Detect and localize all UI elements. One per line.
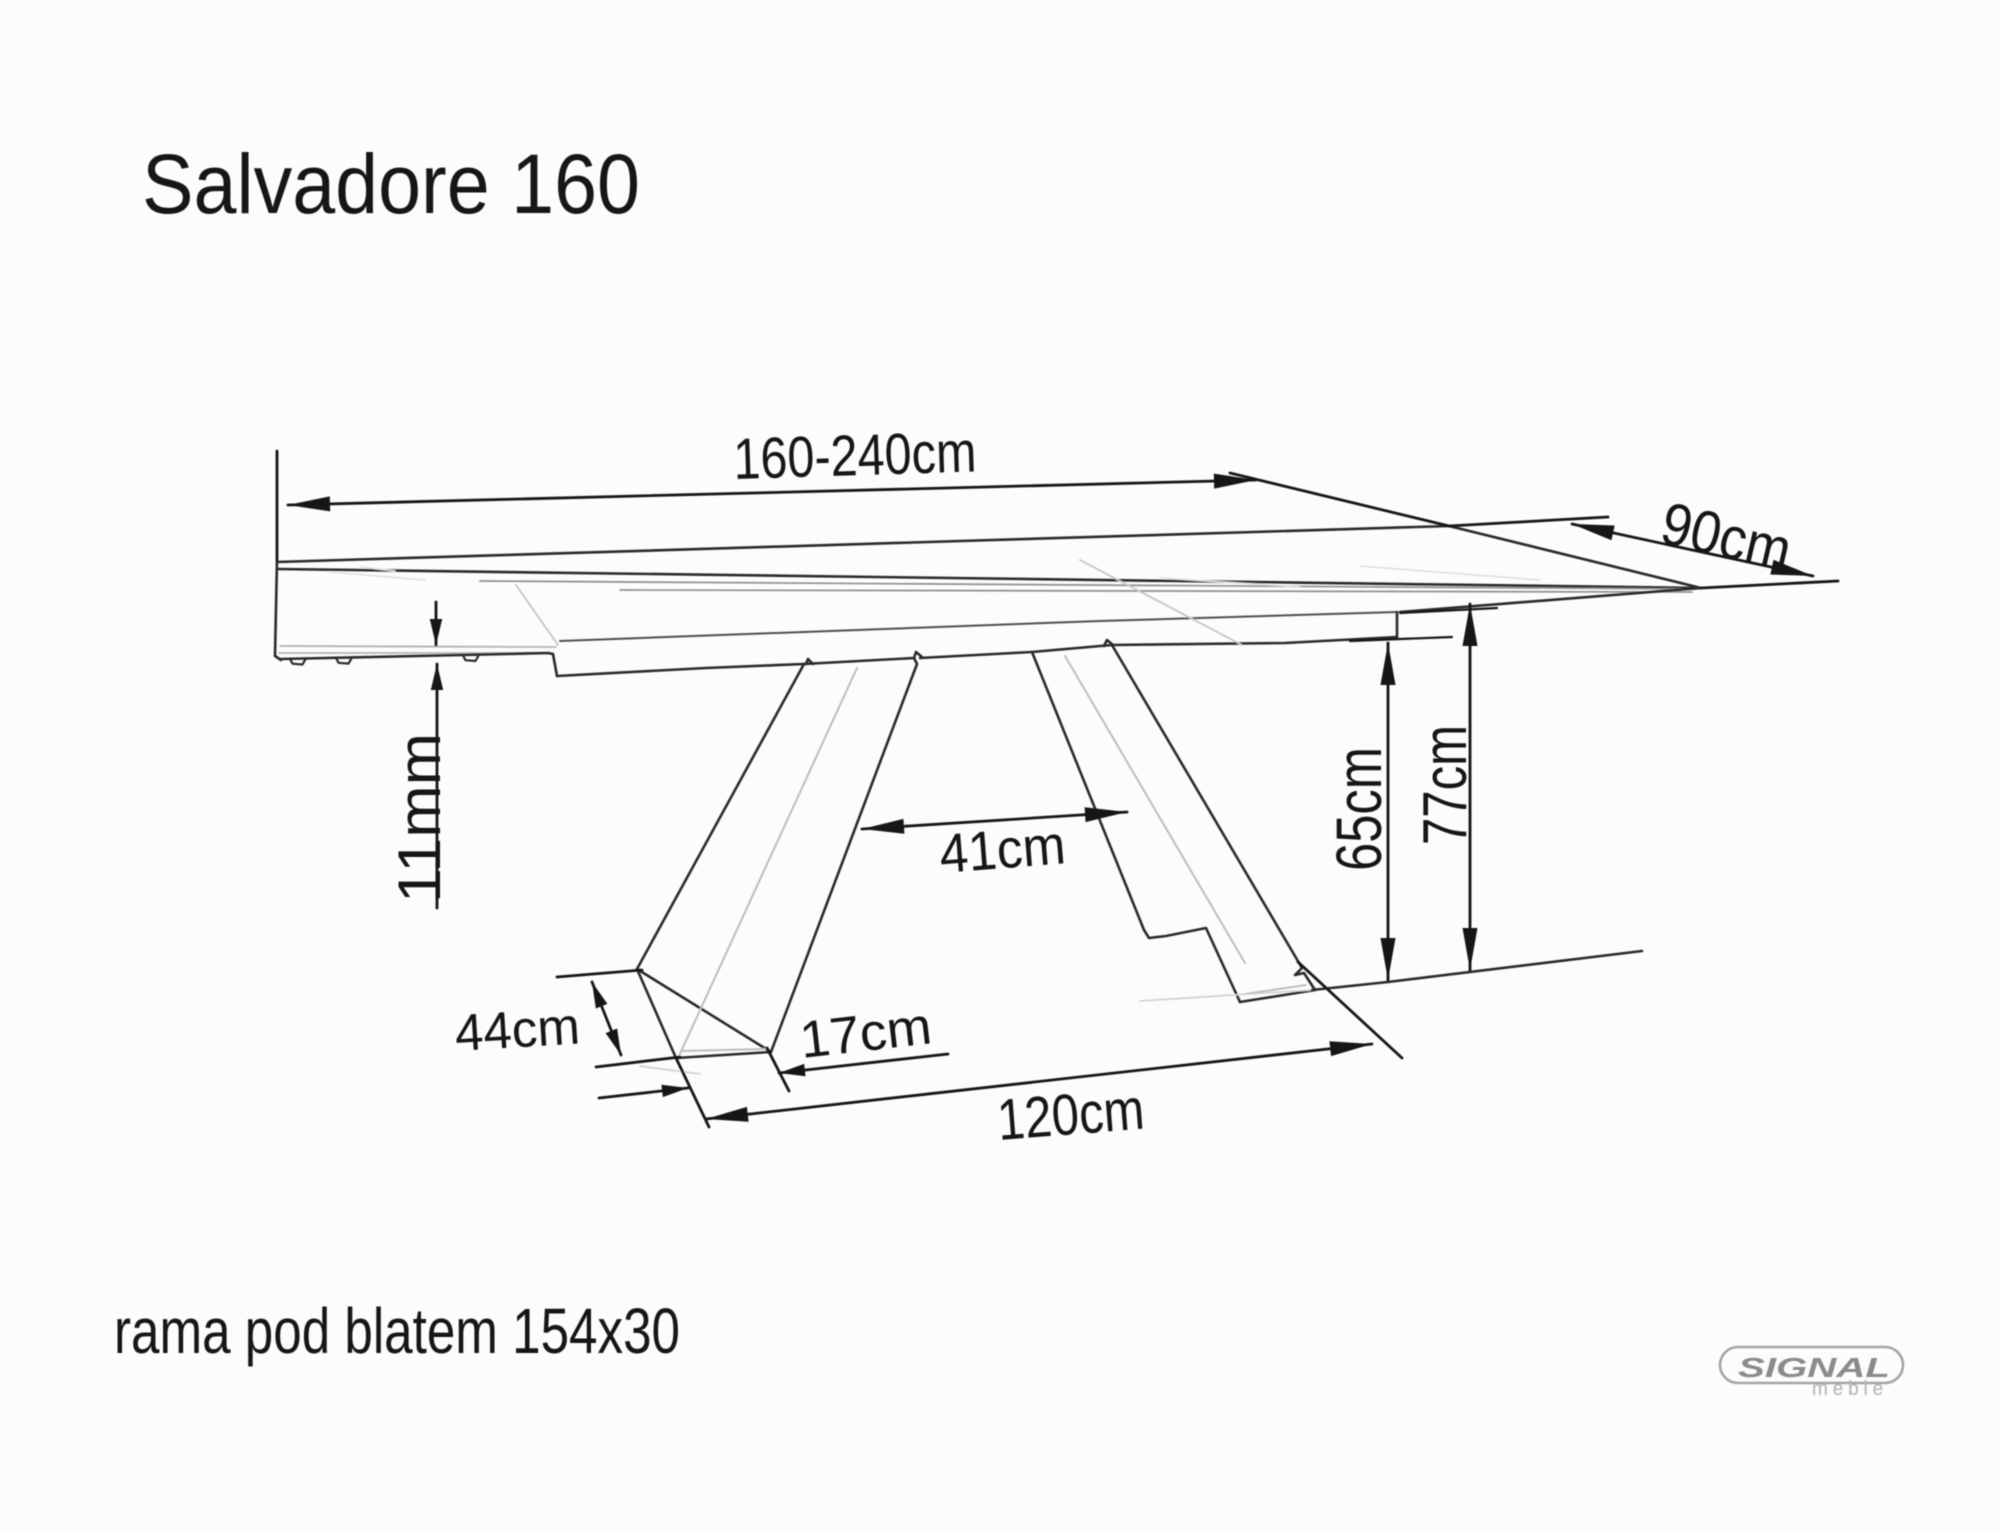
svg-text:160-240cm: 160-240cm xyxy=(732,419,977,492)
svg-text:Salvadore 160: Salvadore 160 xyxy=(142,137,640,231)
svg-text:41cm: 41cm xyxy=(937,813,1067,885)
svg-text:65cm: 65cm xyxy=(1323,747,1395,871)
svg-text:44cm: 44cm xyxy=(453,997,581,1063)
svg-text:meble: meble xyxy=(1812,1378,1888,1400)
svg-text:11mm: 11mm xyxy=(386,733,453,903)
svg-text:rama pod blatem 154x30: rama pod blatem 154x30 xyxy=(114,1295,680,1367)
svg-text:77cm: 77cm xyxy=(1411,725,1480,845)
svg-text:120cm: 120cm xyxy=(995,1077,1147,1153)
